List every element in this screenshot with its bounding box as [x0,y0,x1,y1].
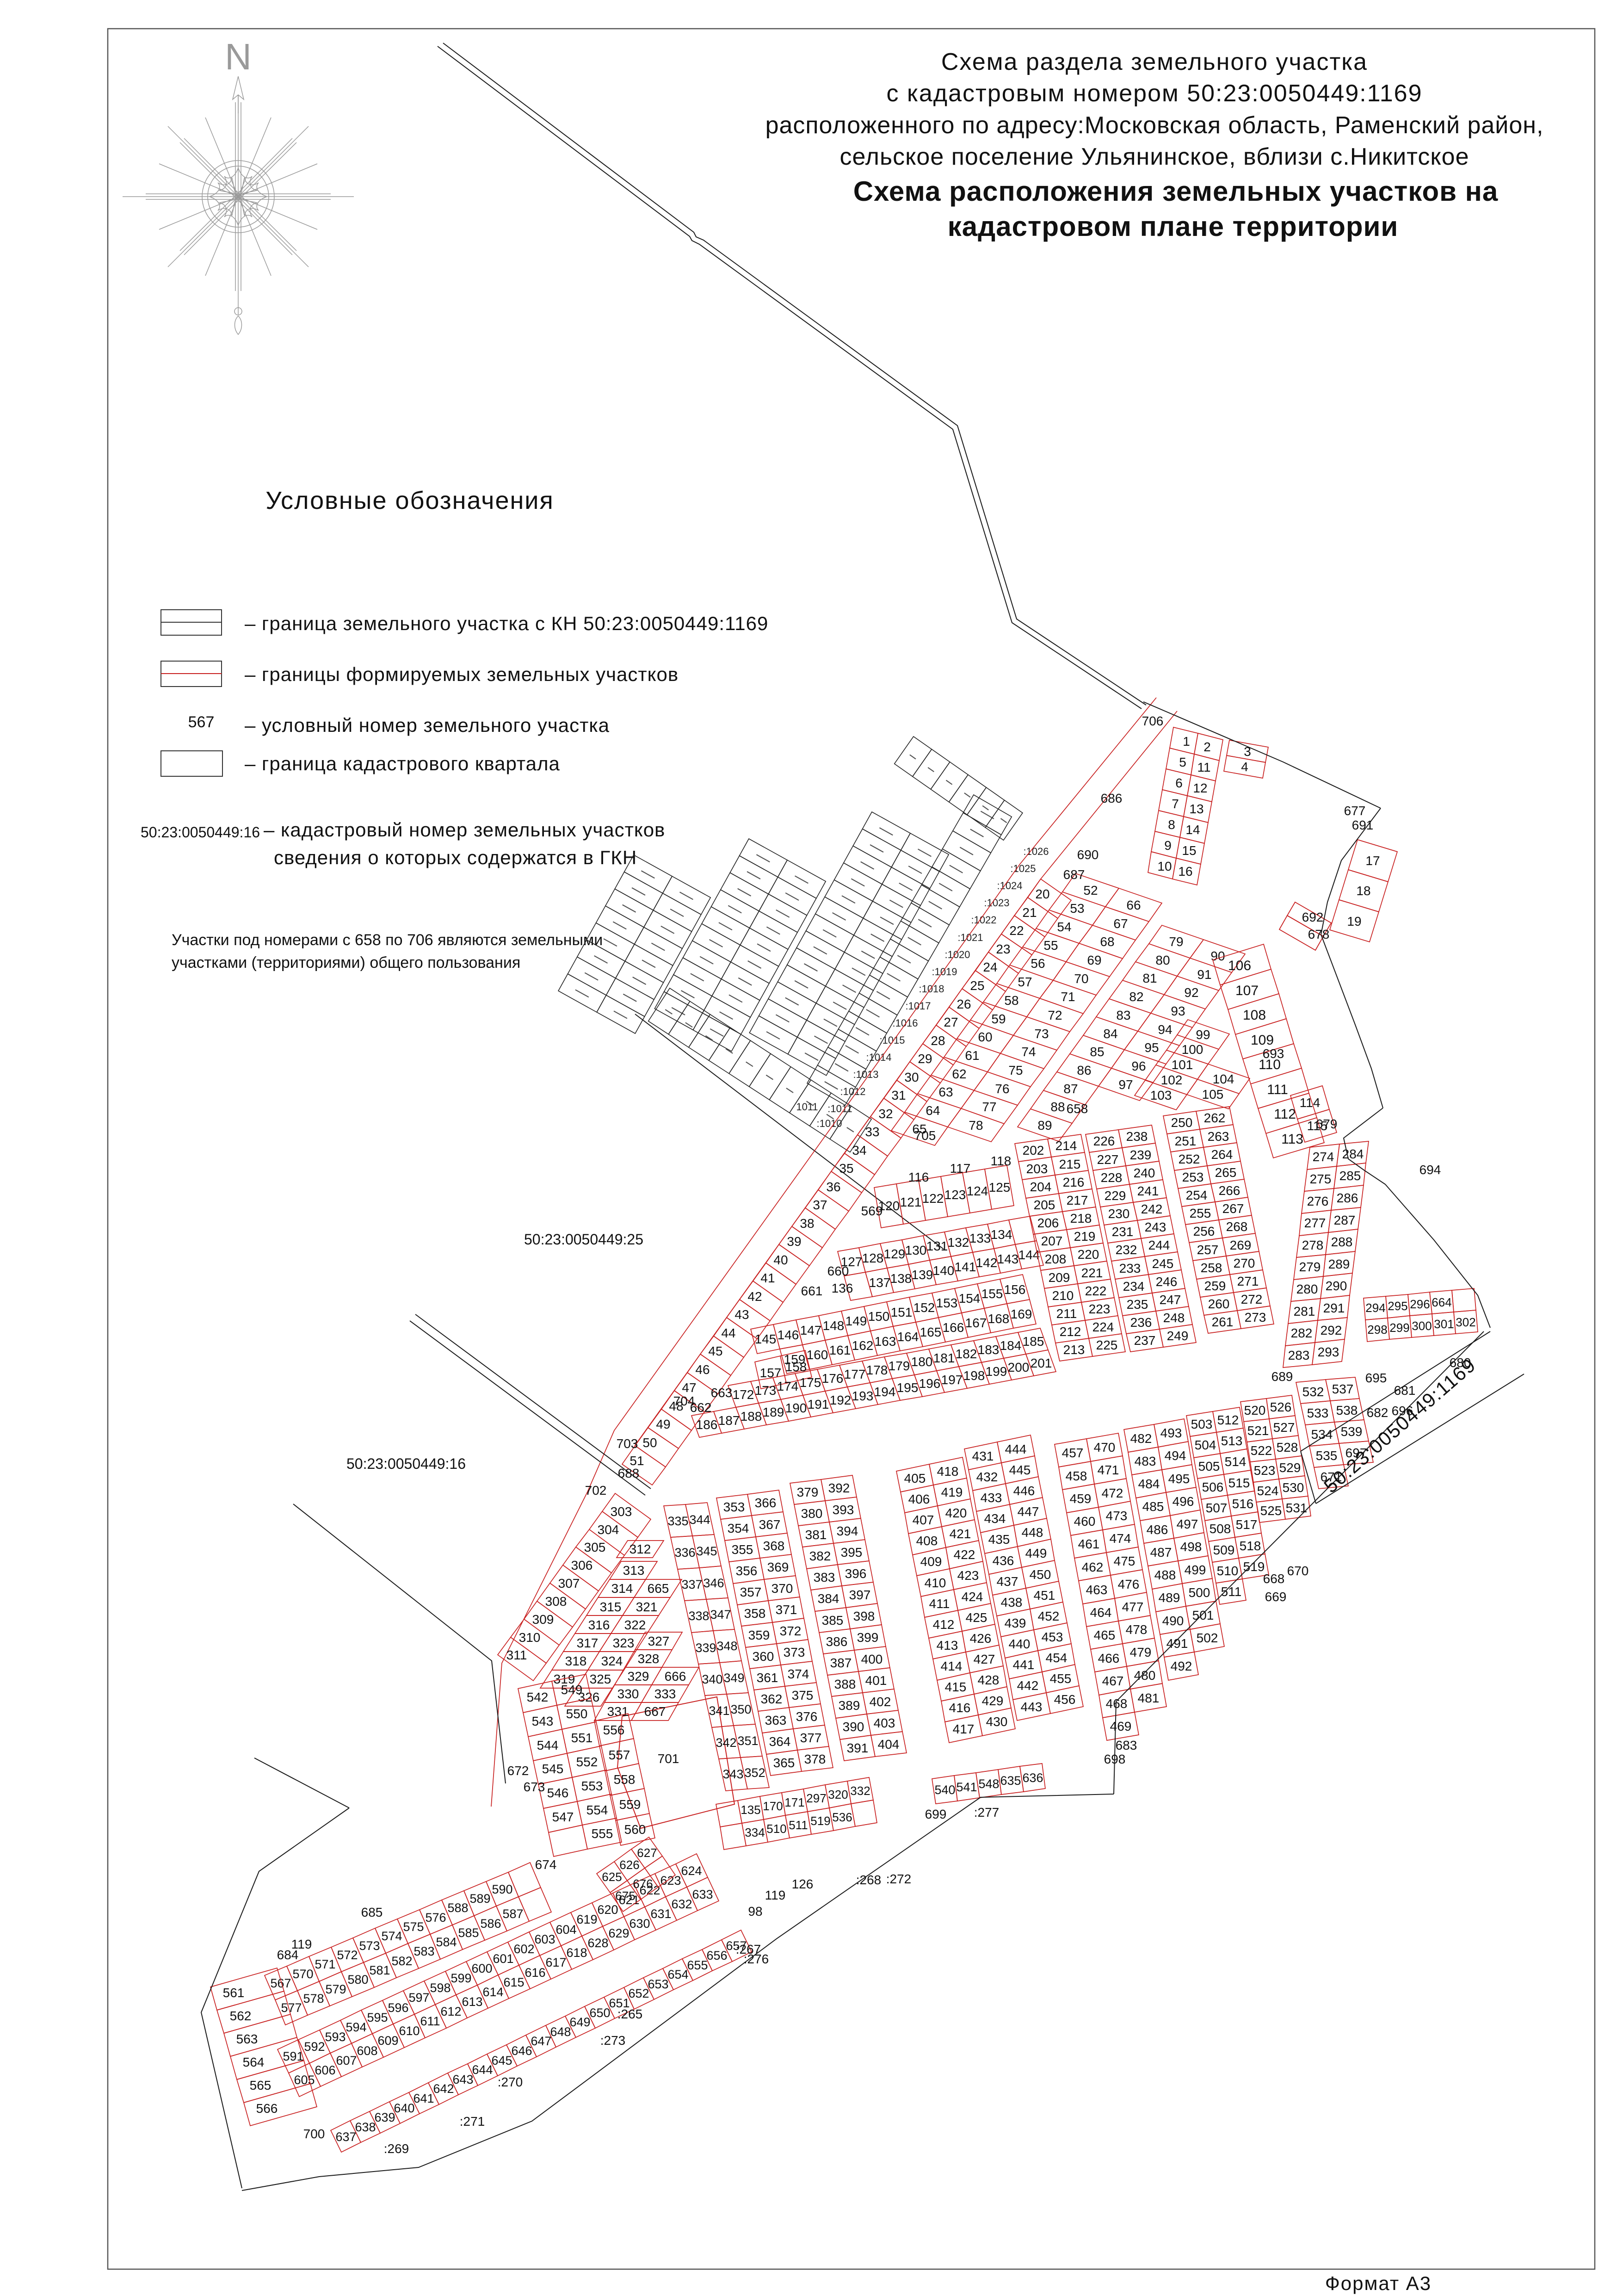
svg-text:283: 283 [1288,1348,1310,1362]
svg-text:353: 353 [723,1500,745,1514]
svg-text:198: 198 [963,1368,985,1383]
svg-text:424: 424 [962,1590,983,1604]
svg-text:114: 114 [1300,1095,1321,1110]
svg-text:96: 96 [1131,1059,1146,1073]
svg-text:459: 459 [1070,1491,1092,1506]
svg-text::277: :277 [974,1805,1000,1819]
svg-text:610: 610 [399,2024,420,2038]
svg-text:644: 644 [472,2063,493,2077]
svg-text:348: 348 [716,1639,737,1653]
svg-text:265: 265 [1215,1165,1237,1180]
svg-text:76: 76 [995,1082,1009,1096]
svg-text:493: 493 [1160,1426,1182,1440]
svg-text:544: 544 [537,1738,559,1752]
svg-text:475: 475 [1114,1554,1135,1568]
svg-text:314: 314 [611,1581,633,1596]
svg-text:521: 521 [1247,1423,1269,1438]
svg-text:662: 662 [690,1400,712,1415]
svg-text:702: 702 [585,1483,607,1498]
svg-text:279: 279 [1299,1260,1321,1274]
svg-text:533: 533 [1307,1406,1329,1420]
svg-text:579: 579 [325,1982,346,1996]
svg-text:29: 29 [918,1052,932,1066]
svg-text:392: 392 [828,1481,850,1495]
svg-text:514: 514 [1225,1454,1247,1469]
svg-text:500: 500 [1189,1585,1210,1600]
svg-text:75: 75 [1008,1063,1023,1077]
svg-text:105: 105 [1202,1087,1224,1102]
svg-text:401: 401 [865,1673,887,1688]
svg-text:219: 219 [1074,1229,1096,1244]
svg-text:240: 240 [1134,1166,1155,1180]
svg-text:101: 101 [1172,1058,1193,1072]
svg-text:336: 336 [674,1546,695,1560]
svg-text:455: 455 [1050,1671,1072,1686]
svg-text:574: 574 [381,1929,402,1943]
svg-text:561: 561 [223,1986,245,2000]
svg-text:256: 256 [1193,1224,1215,1238]
svg-text:81: 81 [1142,971,1157,985]
svg-text:210: 210 [1052,1288,1074,1303]
svg-text::1012: :1012 [840,1086,865,1097]
svg-text:272: 272 [1241,1292,1263,1306]
svg-text:125: 125 [989,1180,1011,1194]
svg-text:199: 199 [986,1364,1007,1379]
svg-text:677: 677 [1344,804,1366,818]
svg-text:642: 642 [433,2082,454,2096]
svg-text:44: 44 [721,1326,735,1340]
svg-text:169: 169 [1011,1307,1032,1321]
svg-text:301: 301 [1434,1317,1454,1331]
svg-text:82: 82 [1129,990,1143,1004]
svg-text:668: 668 [1263,1572,1285,1586]
svg-text:548: 548 [978,1777,999,1791]
svg-text:612: 612 [440,2005,461,2018]
svg-text:214: 214 [1055,1139,1077,1153]
svg-text::1024: :1024 [997,880,1022,891]
svg-text::276: :276 [744,1952,769,1966]
svg-text:700: 700 [303,2127,325,2141]
svg-text:262: 262 [1204,1111,1226,1125]
svg-text:305: 305 [584,1540,606,1554]
svg-text:627: 627 [637,1846,657,1860]
svg-text:231: 231 [1112,1225,1134,1239]
svg-text:335: 335 [667,1514,688,1528]
svg-text:329: 329 [628,1669,649,1683]
svg-text:678: 678 [1308,927,1330,941]
svg-text:581: 581 [369,1963,390,1977]
svg-text:539: 539 [1341,1424,1363,1439]
svg-text:92: 92 [1184,985,1198,1000]
svg-text:кадастровом плане территории: кадастровом плане территории [948,211,1399,242]
svg-text:163: 163 [875,1334,896,1349]
svg-text:172: 172 [733,1387,754,1402]
svg-text:620: 620 [597,1903,618,1917]
svg-text:687: 687 [1063,867,1085,882]
svg-text:171: 171 [784,1795,804,1809]
svg-text:237: 237 [1134,1333,1156,1348]
svg-text:218: 218 [1070,1211,1092,1225]
svg-text:206: 206 [1037,1216,1059,1230]
svg-text:334: 334 [745,1826,765,1839]
svg-text:33: 33 [865,1125,879,1139]
svg-text:624: 624 [681,1864,702,1878]
svg-text:429: 429 [982,1694,1004,1708]
svg-text:327: 327 [648,1634,670,1648]
svg-text:50:23:0050449:25: 50:23:0050449:25 [524,1231,643,1248]
svg-text:249: 249 [1167,1329,1189,1343]
svg-text:537: 537 [1332,1382,1354,1396]
svg-text:95: 95 [1144,1040,1159,1055]
svg-text:604: 604 [555,1923,576,1937]
svg-text:41: 41 [760,1271,775,1285]
svg-text:64: 64 [926,1103,940,1118]
svg-text:342: 342 [716,1736,736,1750]
svg-text:176: 176 [822,1371,844,1386]
svg-text:280: 280 [1296,1282,1318,1296]
svg-text:682: 682 [1367,1405,1388,1420]
svg-text:546: 546 [547,1786,569,1800]
svg-text:529: 529 [1279,1461,1301,1475]
svg-text:460: 460 [1074,1514,1096,1529]
svg-text:524: 524 [1257,1484,1279,1498]
svg-text:373: 373 [784,1645,805,1659]
svg-text:471: 471 [1098,1463,1119,1477]
svg-text:268: 268 [1226,1219,1248,1234]
svg-text:183: 183 [978,1343,1000,1357]
svg-text:313: 313 [623,1563,645,1578]
svg-text:391: 391 [847,1741,869,1755]
svg-text:390: 390 [843,1720,864,1734]
svg-text:563: 563 [236,2032,258,2046]
svg-text:243: 243 [1145,1220,1166,1234]
svg-text::1011: :1011 [827,1103,852,1114]
svg-text:672: 672 [507,1764,529,1778]
svg-text:664: 664 [1432,1295,1451,1309]
svg-text:388: 388 [834,1677,856,1691]
svg-text:149: 149 [845,1314,867,1328]
svg-text:78: 78 [969,1118,983,1133]
svg-text:234: 234 [1123,1279,1145,1293]
svg-text:253: 253 [1182,1170,1204,1184]
svg-text:442: 442 [1017,1678,1039,1693]
svg-text:593: 593 [325,2030,346,2044]
svg-text:430: 430 [986,1714,1008,1729]
svg-text:510: 510 [1217,1564,1239,1578]
svg-text:453: 453 [1042,1630,1063,1644]
svg-text:189: 189 [763,1405,784,1419]
svg-text:502: 502 [1197,1631,1218,1645]
svg-text:565: 565 [250,2078,272,2092]
svg-text:62: 62 [952,1067,966,1081]
svg-text:42: 42 [747,1289,762,1304]
svg-text:538: 538 [1336,1403,1358,1417]
svg-text:245: 245 [1152,1256,1174,1271]
svg-text:567: 567 [270,1976,291,1990]
svg-text:209: 209 [1049,1270,1070,1285]
svg-text:2: 2 [1203,740,1211,754]
svg-text:261: 261 [1212,1315,1234,1329]
svg-text:410: 410 [925,1576,946,1590]
svg-text:58: 58 [1004,993,1018,1008]
svg-text:323: 323 [613,1636,635,1650]
svg-text:– граница земельного участка с: – граница земельного участка с КН 50:23:… [245,613,768,634]
svg-text:661: 661 [801,1284,823,1298]
svg-text:693: 693 [1263,1046,1284,1061]
svg-text:285: 285 [1339,1169,1361,1183]
svg-text:216: 216 [1063,1175,1085,1189]
svg-text:191: 191 [808,1397,829,1411]
svg-text::1018: :1018 [919,983,944,995]
svg-text:91: 91 [1197,967,1211,982]
svg-text:343: 343 [722,1767,743,1781]
svg-text:449: 449 [1025,1546,1047,1560]
svg-text:132: 132 [948,1235,969,1250]
svg-text:386: 386 [826,1634,848,1649]
svg-text:193: 193 [852,1389,874,1403]
svg-text:660: 660 [827,1264,849,1278]
svg-text:400: 400 [861,1652,883,1666]
svg-text:685: 685 [361,1905,383,1919]
svg-text:123: 123 [944,1188,966,1202]
svg-text:436: 436 [993,1553,1014,1568]
svg-text:468: 468 [1106,1696,1128,1711]
svg-text:432: 432 [976,1470,998,1484]
svg-text:38: 38 [800,1216,814,1231]
svg-text:Схема расположения земельных у: Схема расположения земельных участков на [853,176,1499,207]
svg-text:320: 320 [828,1788,848,1801]
svg-text:494: 494 [1165,1448,1186,1463]
svg-text:365: 365 [773,1756,795,1770]
svg-text:507: 507 [1206,1501,1228,1515]
svg-text::1015: :1015 [879,1034,905,1046]
svg-text:сведения о которых содержатся: сведения о которых содержатся в ГКН [274,847,637,868]
svg-text:589: 589 [469,1892,490,1906]
svg-text:643: 643 [452,2073,473,2086]
svg-text:205: 205 [1034,1198,1055,1212]
svg-text:281: 281 [1294,1304,1315,1318]
svg-text:– кадастровый номер земельных: – кадастровый номер земельных участков [264,819,665,841]
svg-text:595: 595 [367,2011,388,2024]
svg-text:545: 545 [542,1762,564,1776]
svg-text:230: 230 [1108,1207,1130,1221]
svg-text:504: 504 [1195,1438,1216,1452]
svg-text:637: 637 [335,2130,356,2144]
svg-text:487: 487 [1150,1545,1172,1560]
svg-text:431: 431 [972,1449,994,1463]
svg-text:196: 196 [919,1376,941,1391]
svg-text:119: 119 [291,1937,312,1951]
svg-text:8: 8 [1168,817,1175,832]
svg-text:640: 640 [394,2101,414,2115]
svg-text:377: 377 [800,1731,822,1745]
svg-text:599: 599 [450,1971,471,1985]
svg-text:93: 93 [1171,1004,1185,1018]
svg-text:443: 443 [1021,1700,1043,1714]
svg-text:73: 73 [1034,1027,1049,1041]
svg-text:66: 66 [1126,898,1141,912]
svg-text:498: 498 [1180,1540,1202,1554]
svg-text:97: 97 [1118,1077,1133,1092]
svg-text:215: 215 [1059,1157,1081,1171]
svg-text:458: 458 [1066,1469,1087,1483]
svg-text:652: 652 [628,1987,649,2000]
svg-text:207: 207 [1041,1234,1063,1248]
svg-text:486: 486 [1147,1522,1168,1537]
svg-text:419: 419 [941,1485,963,1499]
svg-text:102: 102 [1161,1073,1183,1087]
svg-text:154: 154 [959,1291,981,1306]
svg-text:291: 291 [1323,1301,1345,1315]
svg-text:57: 57 [1018,975,1032,989]
svg-text:185: 185 [1023,1334,1044,1349]
svg-text:307: 307 [558,1576,580,1590]
svg-text:355: 355 [732,1542,753,1557]
svg-text:446: 446 [1013,1484,1035,1498]
svg-text:46: 46 [695,1362,710,1377]
svg-text:86: 86 [1077,1063,1091,1077]
svg-text:384: 384 [818,1591,839,1606]
svg-text:587: 587 [502,1907,523,1921]
svg-text:389: 389 [839,1698,860,1713]
svg-text:18: 18 [1356,884,1370,898]
svg-text:673: 673 [524,1780,545,1794]
svg-text:331: 331 [607,1704,629,1719]
svg-text:483: 483 [1135,1454,1156,1468]
svg-text:584: 584 [436,1935,457,1949]
svg-text:511: 511 [789,1818,808,1832]
svg-text:423: 423 [957,1568,979,1583]
svg-text:519: 519 [810,1814,830,1828]
svg-text:242: 242 [1141,1202,1163,1216]
svg-text:393: 393 [833,1503,854,1517]
svg-text:425: 425 [966,1610,987,1625]
svg-text:698: 698 [1104,1752,1126,1766]
svg-text:263: 263 [1208,1129,1229,1144]
svg-text:124: 124 [967,1184,988,1198]
svg-text:122: 122 [922,1191,944,1206]
svg-text:161: 161 [829,1343,851,1357]
svg-text:208: 208 [1045,1252,1067,1266]
svg-text:656: 656 [706,1949,727,1962]
svg-text:89: 89 [1037,1118,1052,1133]
svg-text:705: 705 [914,1128,936,1143]
svg-text:194: 194 [874,1385,896,1399]
svg-text:228: 228 [1101,1170,1123,1185]
svg-text:317: 317 [577,1636,599,1650]
svg-text:302: 302 [1456,1315,1475,1329]
svg-text:170: 170 [763,1799,783,1813]
svg-text:398: 398 [853,1609,875,1623]
svg-text::269: :269 [384,2141,409,2156]
svg-text:133: 133 [969,1231,991,1245]
svg-text:354: 354 [728,1521,749,1535]
svg-text:663: 663 [711,1386,733,1400]
svg-text:151: 151 [891,1305,913,1319]
svg-text::1022: :1022 [971,914,996,926]
svg-text:629: 629 [608,1926,629,1940]
svg-text:303: 303 [611,1504,632,1519]
svg-text:145: 145 [755,1332,777,1346]
svg-text:427: 427 [974,1652,995,1666]
svg-text:653: 653 [648,1977,668,1991]
svg-text:527: 527 [1273,1420,1295,1435]
svg-text:150: 150 [868,1309,890,1324]
svg-text:43: 43 [734,1307,749,1322]
svg-text:577: 577 [281,2001,302,2015]
svg-text:293: 293 [1318,1345,1339,1359]
svg-text:295: 295 [1388,1299,1407,1313]
svg-text:34: 34 [852,1143,866,1157]
svg-text:691: 691 [1352,818,1374,832]
svg-text:30: 30 [904,1070,919,1084]
svg-text:557: 557 [609,1748,630,1762]
svg-text:441: 441 [1013,1658,1035,1672]
svg-text:79: 79 [1169,934,1183,949]
svg-text:178: 178 [866,1363,888,1377]
svg-text:309: 309 [532,1612,554,1627]
svg-text:598: 598 [430,1981,450,1995]
svg-text:40: 40 [773,1253,788,1267]
svg-text:570: 570 [292,1967,313,1981]
svg-text:223: 223 [1089,1302,1111,1316]
svg-text:181: 181 [933,1351,955,1365]
svg-text:380: 380 [801,1506,823,1521]
svg-text:534: 534 [1311,1427,1333,1442]
svg-text:217: 217 [1067,1193,1088,1207]
svg-text::1019: :1019 [932,966,957,978]
svg-text:227: 227 [1097,1152,1119,1167]
svg-text:153: 153 [936,1296,958,1310]
svg-text:572: 572 [337,1948,358,1962]
svg-text:444: 444 [1005,1442,1027,1456]
svg-text:69: 69 [1087,953,1101,967]
svg-text:696: 696 [1392,1404,1413,1418]
svg-text:165: 165 [920,1325,942,1339]
svg-text:549: 549 [561,1683,583,1697]
svg-text:100: 100 [1182,1042,1203,1057]
svg-text:с кадастровым номером 50:23:00: с кадастровым номером 50:23:0050449:1169 [887,80,1423,107]
svg-text:513: 513 [1221,1434,1243,1448]
svg-text:378: 378 [804,1752,826,1766]
svg-text:290: 290 [1326,1279,1347,1293]
svg-text:631: 631 [650,1907,671,1921]
svg-text:50: 50 [642,1436,657,1450]
svg-text:160: 160 [807,1348,828,1362]
svg-text:518: 518 [1240,1539,1261,1553]
svg-text:35: 35 [839,1161,853,1176]
svg-text:619: 619 [576,1912,597,1926]
svg-text:162: 162 [852,1338,874,1353]
svg-text:72: 72 [1048,1008,1062,1022]
svg-text:141: 141 [955,1260,976,1274]
svg-text:617: 617 [545,1956,566,1969]
svg-text:277: 277 [1304,1216,1326,1230]
svg-text:605: 605 [294,2073,315,2087]
svg-text:635: 635 [1000,1774,1021,1788]
svg-text:347: 347 [710,1608,731,1621]
svg-text:324: 324 [601,1654,623,1668]
svg-text:108: 108 [1243,1008,1266,1023]
svg-text:567: 567 [188,713,215,731]
svg-text:520: 520 [1244,1403,1266,1417]
svg-text:98: 98 [748,1904,762,1918]
svg-text:349: 349 [723,1671,744,1685]
svg-text:699: 699 [925,1807,947,1821]
svg-text:17: 17 [1365,854,1380,868]
svg-text:1011: 1011 [796,1101,818,1113]
svg-text:294: 294 [1365,1301,1385,1315]
